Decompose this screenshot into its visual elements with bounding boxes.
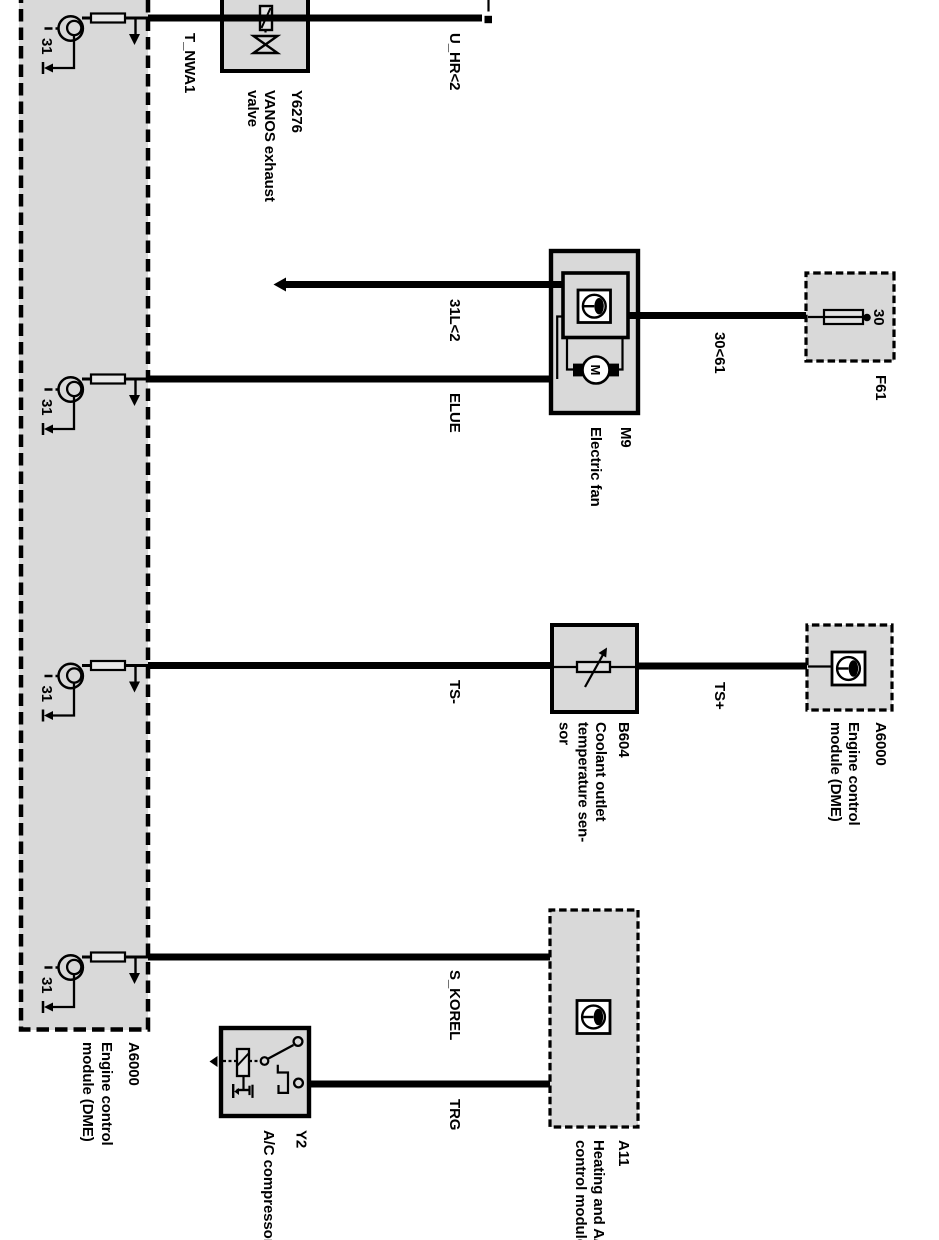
svg-text:Engine control: Engine control bbox=[98, 1042, 115, 1146]
svg-text:31L<2: 31L<2 bbox=[446, 299, 463, 341]
svg-text:A11: A11 bbox=[615, 1140, 632, 1166]
svg-text:U_HR<2: U_HR<2 bbox=[446, 33, 463, 90]
svg-text:temperature sen-: temperature sen- bbox=[575, 722, 592, 842]
svg-text:Coolant outlet: Coolant outlet bbox=[592, 722, 609, 822]
svg-text:B604: B604 bbox=[615, 722, 632, 758]
svg-text:M9: M9 bbox=[617, 427, 634, 448]
svg-text:A/C compressor relay: A/C compressor relay bbox=[260, 1130, 277, 1240]
svg-text:TS-: TS- bbox=[446, 680, 463, 704]
svg-text:control module: control module bbox=[572, 1140, 589, 1240]
svg-text:A6000: A6000 bbox=[872, 722, 889, 766]
svg-text:ELUE: ELUE bbox=[446, 393, 463, 433]
svg-text:30: 30 bbox=[870, 309, 887, 326]
svg-text:sor: sor bbox=[556, 722, 573, 745]
svg-text:Y6276: Y6276 bbox=[288, 90, 305, 133]
svg-text:module (DME): module (DME) bbox=[79, 1042, 96, 1142]
svg-text:Y2: Y2 bbox=[293, 1130, 310, 1148]
svg-text:module (DME): module (DME) bbox=[827, 722, 844, 822]
svg-text:A6000: A6000 bbox=[125, 1042, 142, 1086]
svg-text:30<61: 30<61 bbox=[711, 332, 728, 374]
svg-text:VANOS exhaust: VANOS exhaust bbox=[261, 90, 278, 202]
svg-text:Electric fan: Electric fan bbox=[587, 427, 604, 507]
svg-text:S_KOREL: S_KOREL bbox=[446, 970, 463, 1040]
svg-text:valve: valve bbox=[244, 90, 261, 127]
svg-text:Heating and A/C: Heating and A/C bbox=[590, 1140, 607, 1240]
svg-text:TS+: TS+ bbox=[711, 682, 728, 710]
svg-text:TRG: TRG bbox=[446, 1099, 463, 1130]
svg-text:F61: F61 bbox=[872, 375, 889, 401]
svg-text:M: M bbox=[588, 365, 603, 376]
svg-text:Engine control: Engine control bbox=[845, 722, 862, 826]
svg-text:T_NWA1: T_NWA1 bbox=[181, 33, 198, 93]
